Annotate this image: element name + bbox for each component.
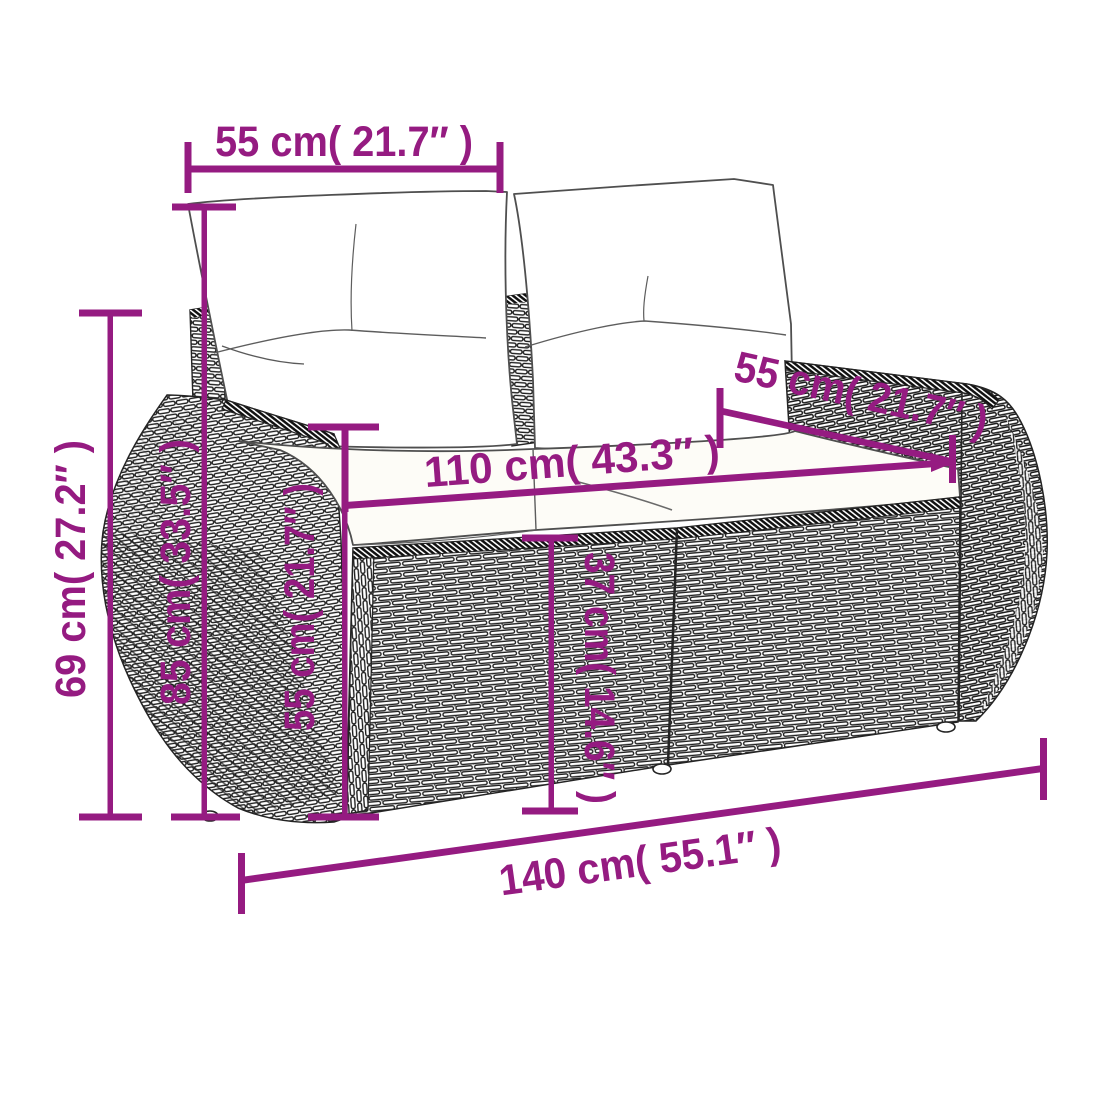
svg-text:55 cm( 21.7″ ): 55 cm( 21.7″ ) [276, 483, 324, 731]
svg-text:69 cm( 27.2″ ): 69 cm( 27.2″ ) [47, 440, 95, 698]
svg-text:85 cm( 33.5″ ): 85 cm( 33.5″ ) [152, 439, 200, 705]
svg-text:37 cm( 14.6″ ): 37 cm( 14.6″ ) [575, 552, 623, 804]
svg-text:55 cm( 21.7″ ): 55 cm( 21.7″ ) [215, 118, 473, 166]
